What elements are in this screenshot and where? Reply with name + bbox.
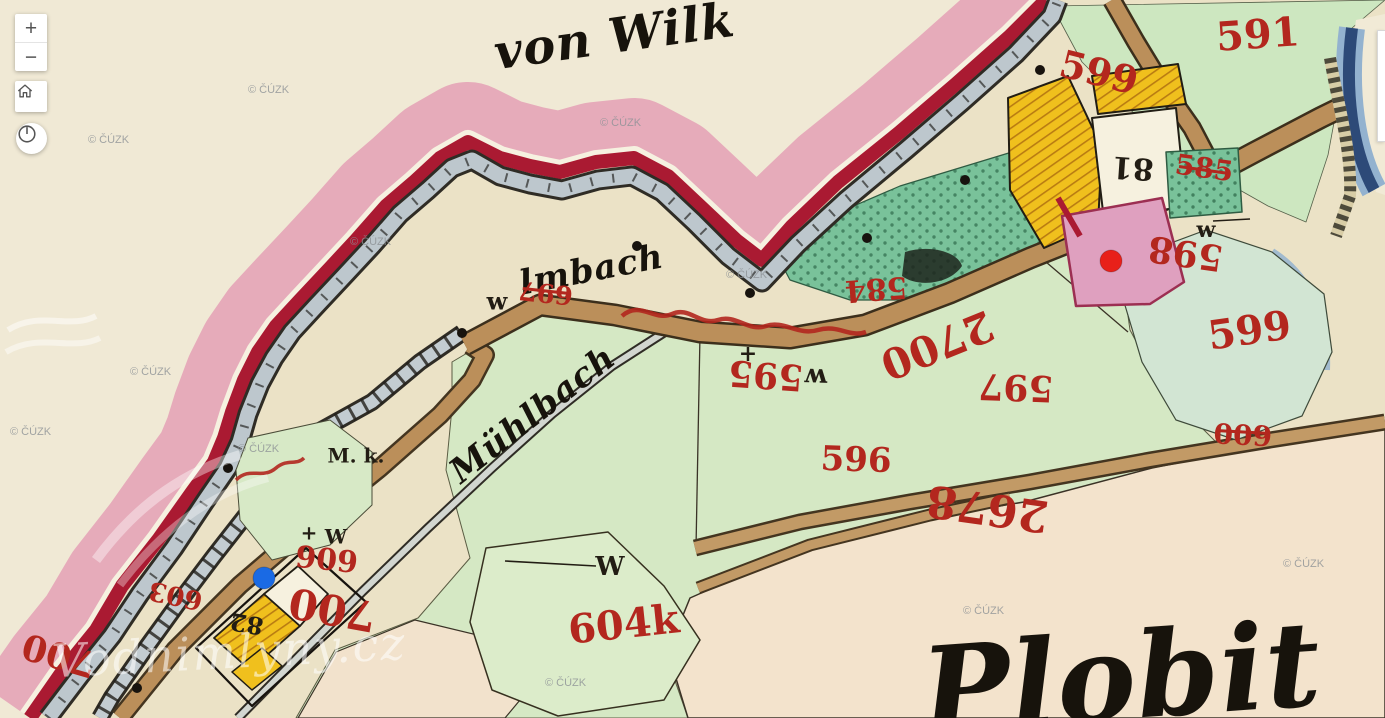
- boundary-stone-dot: [960, 175, 970, 185]
- cuzk-watermark: © ČÚZK: [248, 83, 290, 96]
- house-number-label: +: [301, 521, 318, 545]
- cuzk-watermark: © ČÚZK: [963, 604, 1005, 617]
- parcel-number-label: 591: [1214, 8, 1301, 61]
- zoom-in-button[interactable]: +: [15, 14, 47, 42]
- parcel-number-label: 597: [978, 365, 1055, 410]
- house-number-label: +: [739, 341, 757, 367]
- boundary-stone-dot: [457, 328, 467, 338]
- red-map-marker[interactable]: [1100, 250, 1122, 272]
- cuzk-watermark: © ČÚZK: [130, 365, 172, 378]
- home-icon: [15, 81, 35, 101]
- house-number-label: W: [324, 525, 348, 549]
- house-number-label: W: [594, 552, 625, 582]
- boundary-stone-dot: [862, 233, 872, 243]
- cuzk-watermark: © ČÚZK: [88, 133, 130, 146]
- history-button[interactable]: [16, 123, 47, 154]
- house-number-label: w: [804, 362, 829, 393]
- boundary-stone-dot: [1035, 65, 1045, 75]
- cuzk-watermark: © ČÚZK: [726, 268, 768, 281]
- house-number-label: 81: [1111, 149, 1155, 187]
- boundary-stone-dot: [132, 683, 142, 693]
- zoom-control-group: + −: [15, 14, 47, 71]
- clock-icon: [16, 123, 38, 145]
- cuzk-watermark: © ČÚZK: [350, 235, 392, 248]
- boundary-stone-dot: [745, 288, 755, 298]
- blue-map-marker[interactable]: [253, 567, 275, 589]
- zoom-out-button[interactable]: −: [15, 42, 47, 71]
- parcel-number-label: 596: [820, 439, 892, 481]
- house-number-label: M. k.: [328, 444, 385, 468]
- map-viewport[interactable]: von WilklmbachMühlbachPlobit 59159958559…: [0, 0, 1385, 718]
- cuzk-watermark: © ČÚZK: [545, 676, 587, 689]
- house-number-label: w: [1196, 217, 1217, 243]
- cuzk-watermark: © ČÚZK: [238, 442, 280, 455]
- cuzk-watermark: © ČÚZK: [600, 116, 642, 129]
- parcel-number-label: 584: [844, 269, 909, 308]
- cuzk-watermark: © ČÚZK: [1283, 557, 1325, 570]
- home-button[interactable]: [15, 81, 47, 112]
- historical-cadastral-map: von WilklmbachMühlbachPlobit 59159958559…: [0, 0, 1385, 718]
- cuzk-watermark: © ČÚZK: [10, 425, 52, 438]
- house-number-label: w: [486, 287, 509, 316]
- collapsed-side-panel[interactable]: [1377, 30, 1385, 142]
